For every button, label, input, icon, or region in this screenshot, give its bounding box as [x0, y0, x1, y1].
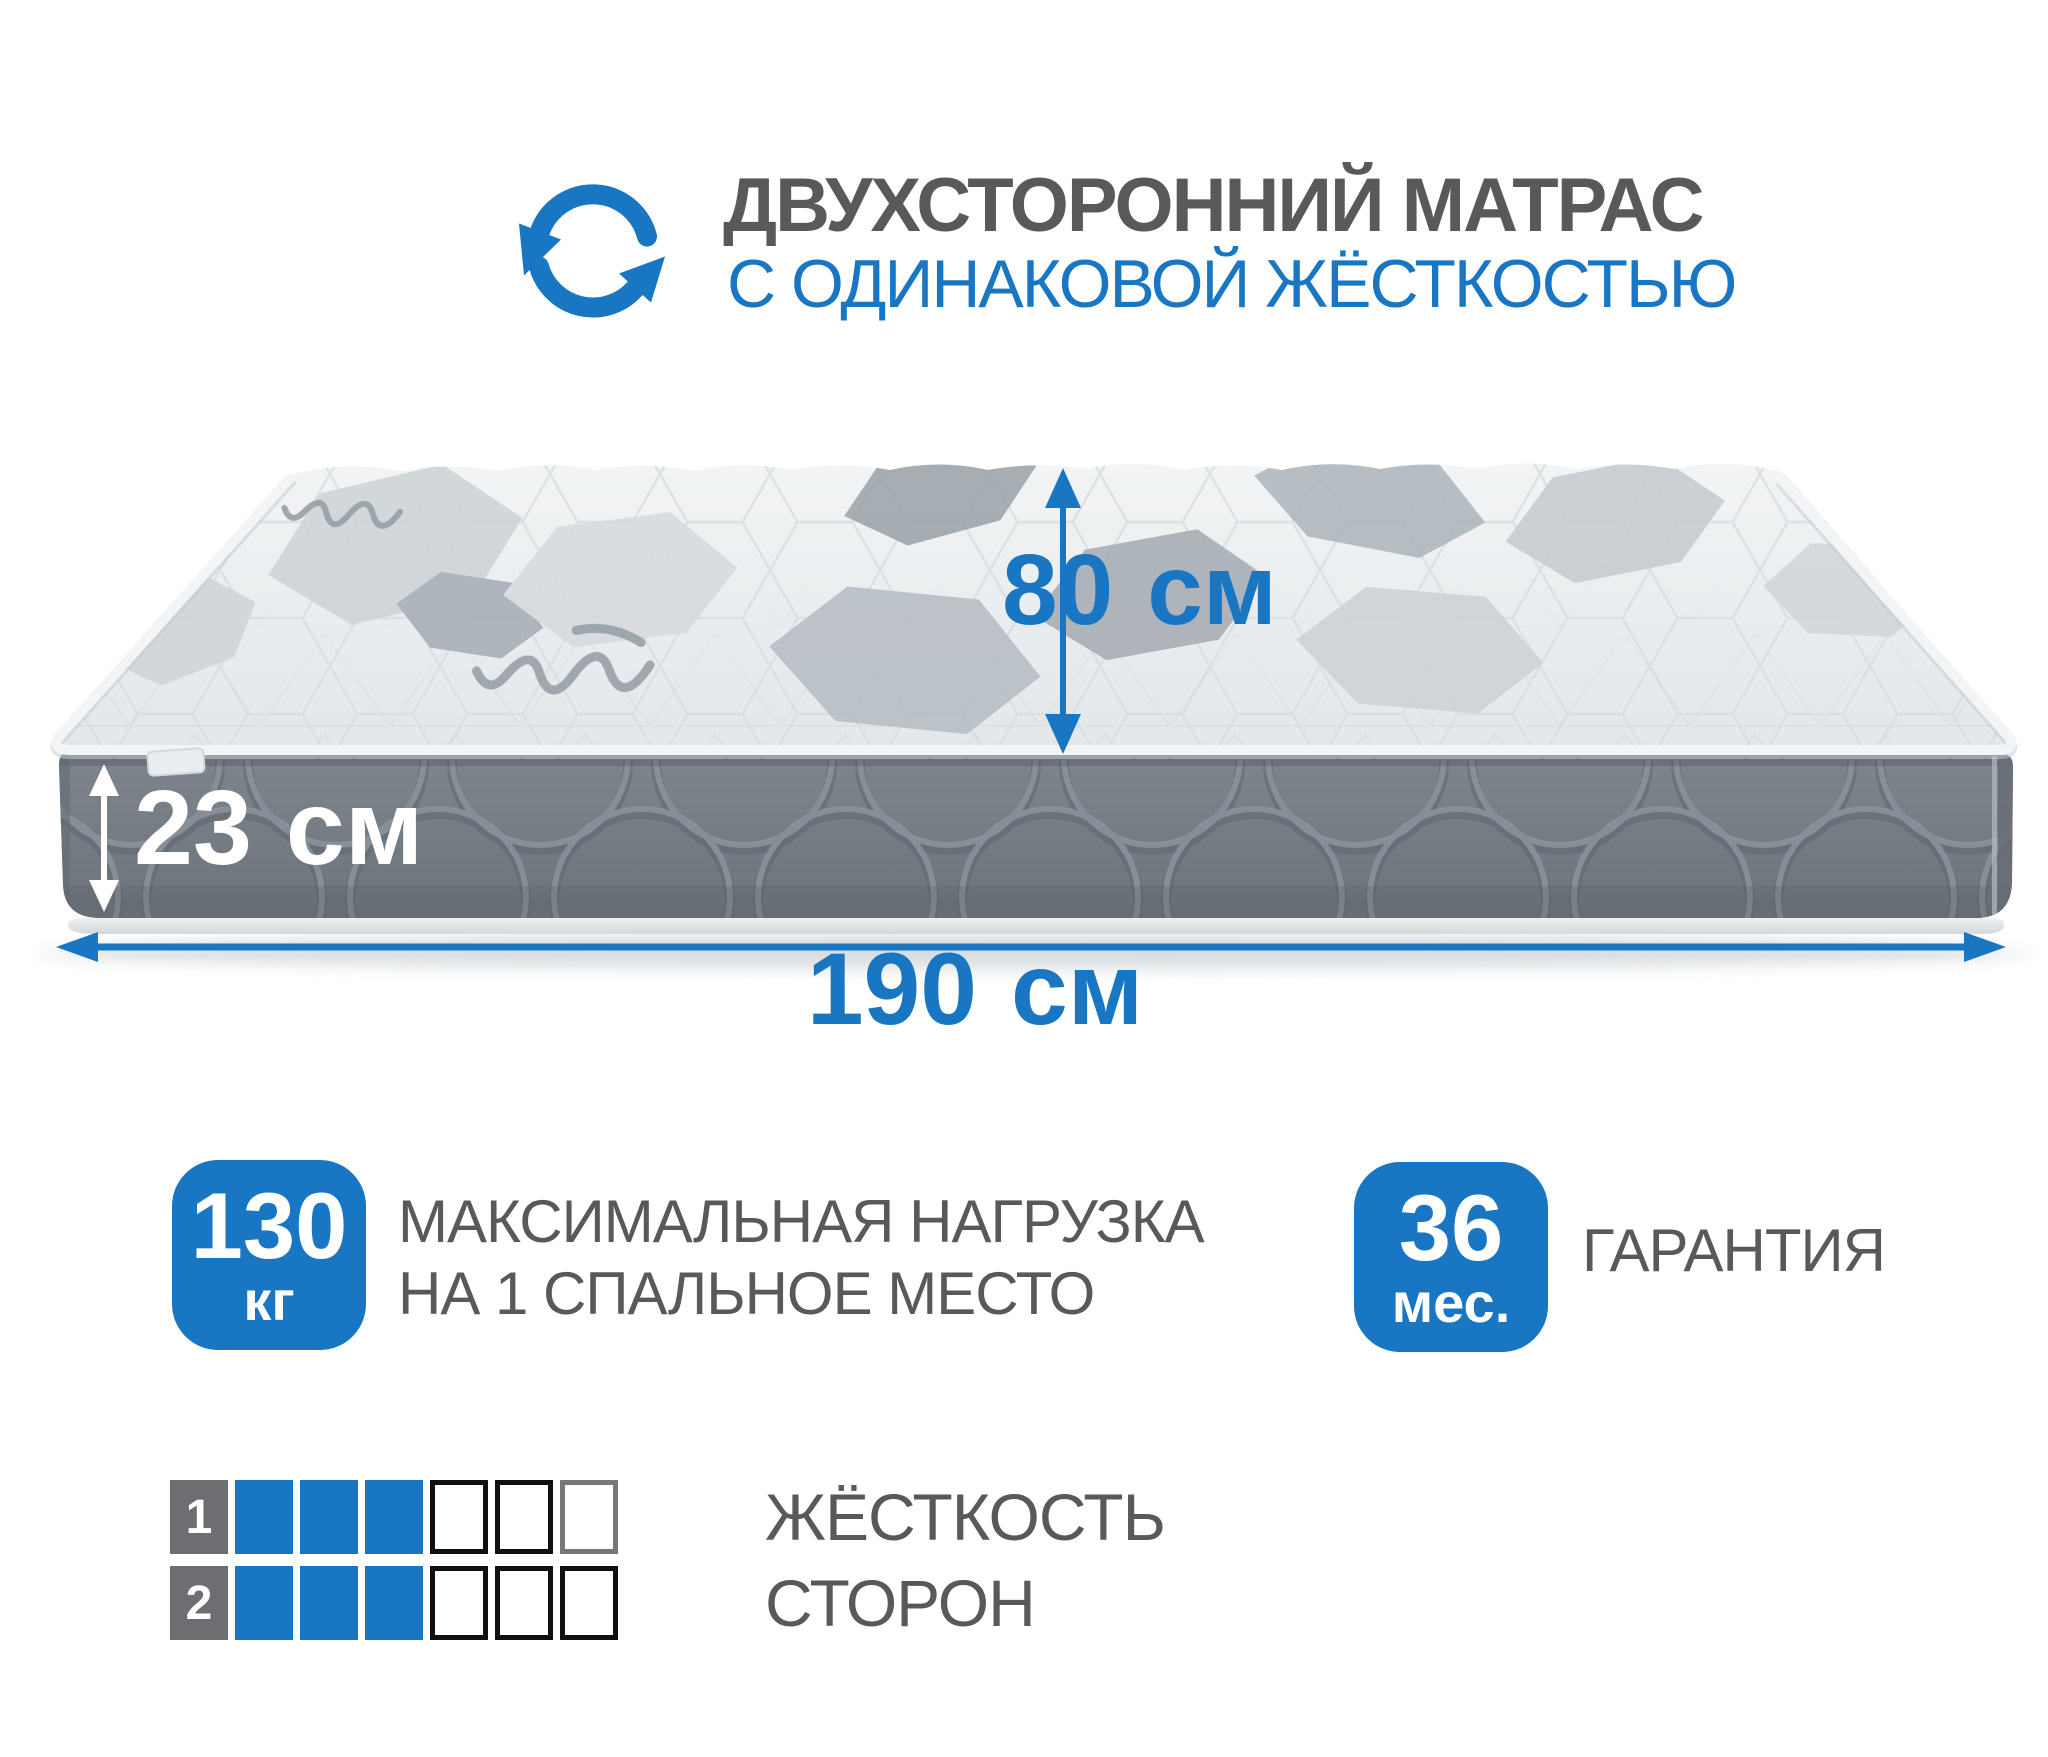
firmness-row: 2: [170, 1566, 618, 1640]
dimension-length-value: 190: [807, 932, 977, 1046]
page-title: ДВУХСТОРОННИЙ МАТРАС: [723, 168, 1703, 244]
firmness-cell-empty: [560, 1566, 618, 1640]
warranty-label: ГАРАНТИЯ: [1582, 1221, 1885, 1281]
firmness-cell-filled: [300, 1566, 358, 1640]
dimension-sleep-width-unit: см: [1147, 534, 1277, 646]
dimension-arrow-23: [80, 762, 128, 914]
firmness-caption: ЖЁСТКОСТЬ СТОРОН: [765, 1480, 1165, 1640]
rotate-arrows-icon: [503, 170, 683, 335]
firmness-cell-empty: [560, 1480, 618, 1554]
firmness-cell-empty: [495, 1480, 553, 1554]
firmness-cell-empty: [430, 1480, 488, 1554]
firmness-cell-empty: [495, 1566, 553, 1640]
warranty-unit: мес.: [1392, 1275, 1511, 1331]
firmness-cell-filled: [365, 1480, 423, 1554]
firmness-row-number: 1: [170, 1480, 228, 1554]
firmness-cell-empty: [430, 1566, 488, 1640]
max-load-value: 130: [191, 1181, 348, 1270]
max-load-label-line2: НА 1 СПАЛЬНОЕ МЕСТО: [398, 1258, 1204, 1330]
page-subtitle: С ОДИНАКОВОЙ ЖЁСТКОСТЬЮ: [727, 250, 1735, 318]
max-load-unit: кг: [243, 1273, 294, 1329]
firmness-caption-line2: СТОРОН: [765, 1566, 1165, 1640]
warranty-value: 36: [1399, 1183, 1504, 1272]
dimension-sleep-width-value: 80: [1002, 534, 1113, 646]
firmness-caption-line1: ЖЁСТКОСТЬ: [765, 1480, 1165, 1554]
dimension-length: 190см: [0, 938, 1999, 1040]
dimension-sleep-width: 80см: [1002, 540, 1277, 640]
mattress-illustration: [0, 330, 2048, 990]
firmness-scale: 12: [170, 1480, 618, 1640]
max-load-label-line1: МАКСИМАЛЬНАЯ НАГРУЗКА: [398, 1186, 1204, 1258]
firmness-cell-filled: [235, 1480, 293, 1554]
firmness-cell-filled: [235, 1566, 293, 1640]
dimension-height-value: 23: [134, 769, 252, 887]
max-load-badge: 130 кг: [172, 1160, 366, 1350]
warranty-badge: 36 мес.: [1354, 1162, 1548, 1352]
dimension-length-unit: см: [1011, 932, 1143, 1046]
mattress-infographic: ДВУХСТОРОННИЙ МАТРАС С ОДИНАКОВОЙ ЖЁСТКО…: [0, 0, 2048, 1757]
dimension-height: 23см: [134, 775, 423, 881]
dimension-height-unit: см: [286, 769, 423, 887]
firmness-row-number: 2: [170, 1566, 228, 1640]
firmness-row: 1: [170, 1480, 618, 1554]
max-load-label: МАКСИМАЛЬНАЯ НАГРУЗКА НА 1 СПАЛЬНОЕ МЕСТ…: [398, 1186, 1204, 1330]
firmness-cell-filled: [365, 1566, 423, 1640]
firmness-cell-filled: [300, 1480, 358, 1554]
